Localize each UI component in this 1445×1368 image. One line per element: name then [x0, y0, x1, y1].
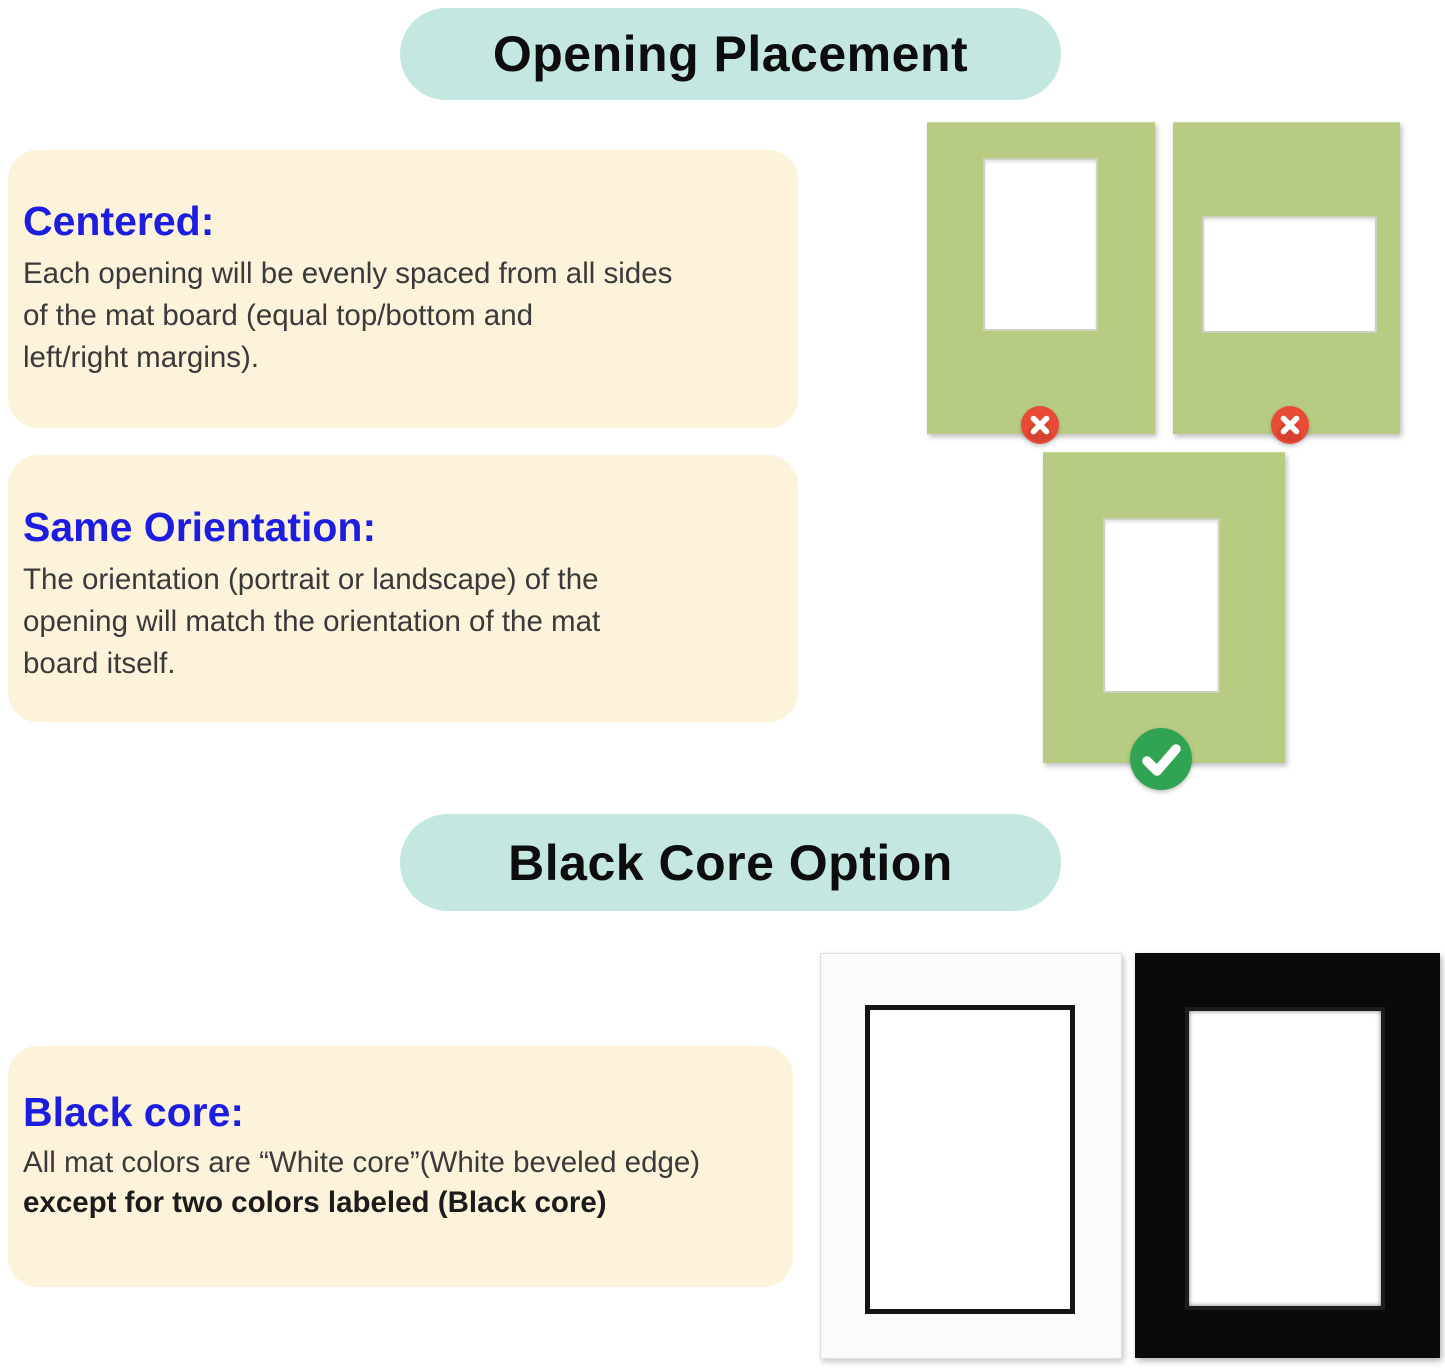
x-icon	[1271, 406, 1309, 444]
black-mat-black-core-sample	[1135, 953, 1440, 1358]
centered-body-line: Each opening will be evenly spaced from …	[23, 253, 786, 295]
white-mat-black-core-sample	[820, 953, 1122, 1359]
example-mat-correct-centered	[1043, 452, 1285, 763]
black-core-title-pill: Black Core Option	[400, 814, 1061, 911]
centered-info-card: Centered: Each opening will be evenly sp…	[8, 150, 798, 428]
same-orientation-body-line: The orientation (portrait or landscape) …	[23, 559, 786, 601]
black-core-body-line-bold: except for two colors labeled (Black cor…	[23, 1183, 781, 1223]
same-orientation-info-card: Same Orientation: The orientation (portr…	[8, 455, 798, 722]
centered-body: Each opening will be evenly spaced from …	[23, 253, 786, 379]
black-core-title: Black Core Option	[508, 834, 953, 892]
black-core-body: All mat colors are “White core”(White be…	[23, 1143, 781, 1223]
x-icon	[1021, 406, 1059, 444]
example-mat-wrong-orientation	[1173, 122, 1400, 434]
centered-body-line: left/right margins).	[23, 337, 786, 379]
same-orientation-body-line: board itself.	[23, 643, 786, 685]
black-core-body-line: All mat colors are “White core”(White be…	[23, 1143, 781, 1183]
mat-board-infographic: Opening Placement Centered: Each opening…	[0, 0, 1445, 1368]
mat-opening	[1202, 216, 1377, 333]
same-orientation-heading: Same Orientation:	[23, 455, 786, 549]
mat-opening-black-bevel	[1185, 1007, 1385, 1310]
black-core-heading: Black core:	[23, 1046, 781, 1134]
same-orientation-body: The orientation (portrait or landscape) …	[23, 559, 786, 685]
opening-placement-title-pill: Opening Placement	[400, 8, 1061, 100]
example-mat-opening-too-high	[927, 122, 1155, 434]
opening-placement-title: Opening Placement	[493, 25, 968, 83]
mat-opening	[1103, 518, 1220, 693]
mat-opening-black-bevel	[865, 1005, 1075, 1314]
black-core-info-card: Black core: All mat colors are “White co…	[8, 1046, 793, 1287]
centered-body-line: of the mat board (equal top/bottom and	[23, 295, 786, 337]
mat-opening	[983, 158, 1098, 331]
same-orientation-body-line: opening will match the orientation of th…	[23, 601, 786, 643]
check-icon	[1130, 728, 1192, 790]
centered-heading: Centered:	[23, 150, 786, 243]
